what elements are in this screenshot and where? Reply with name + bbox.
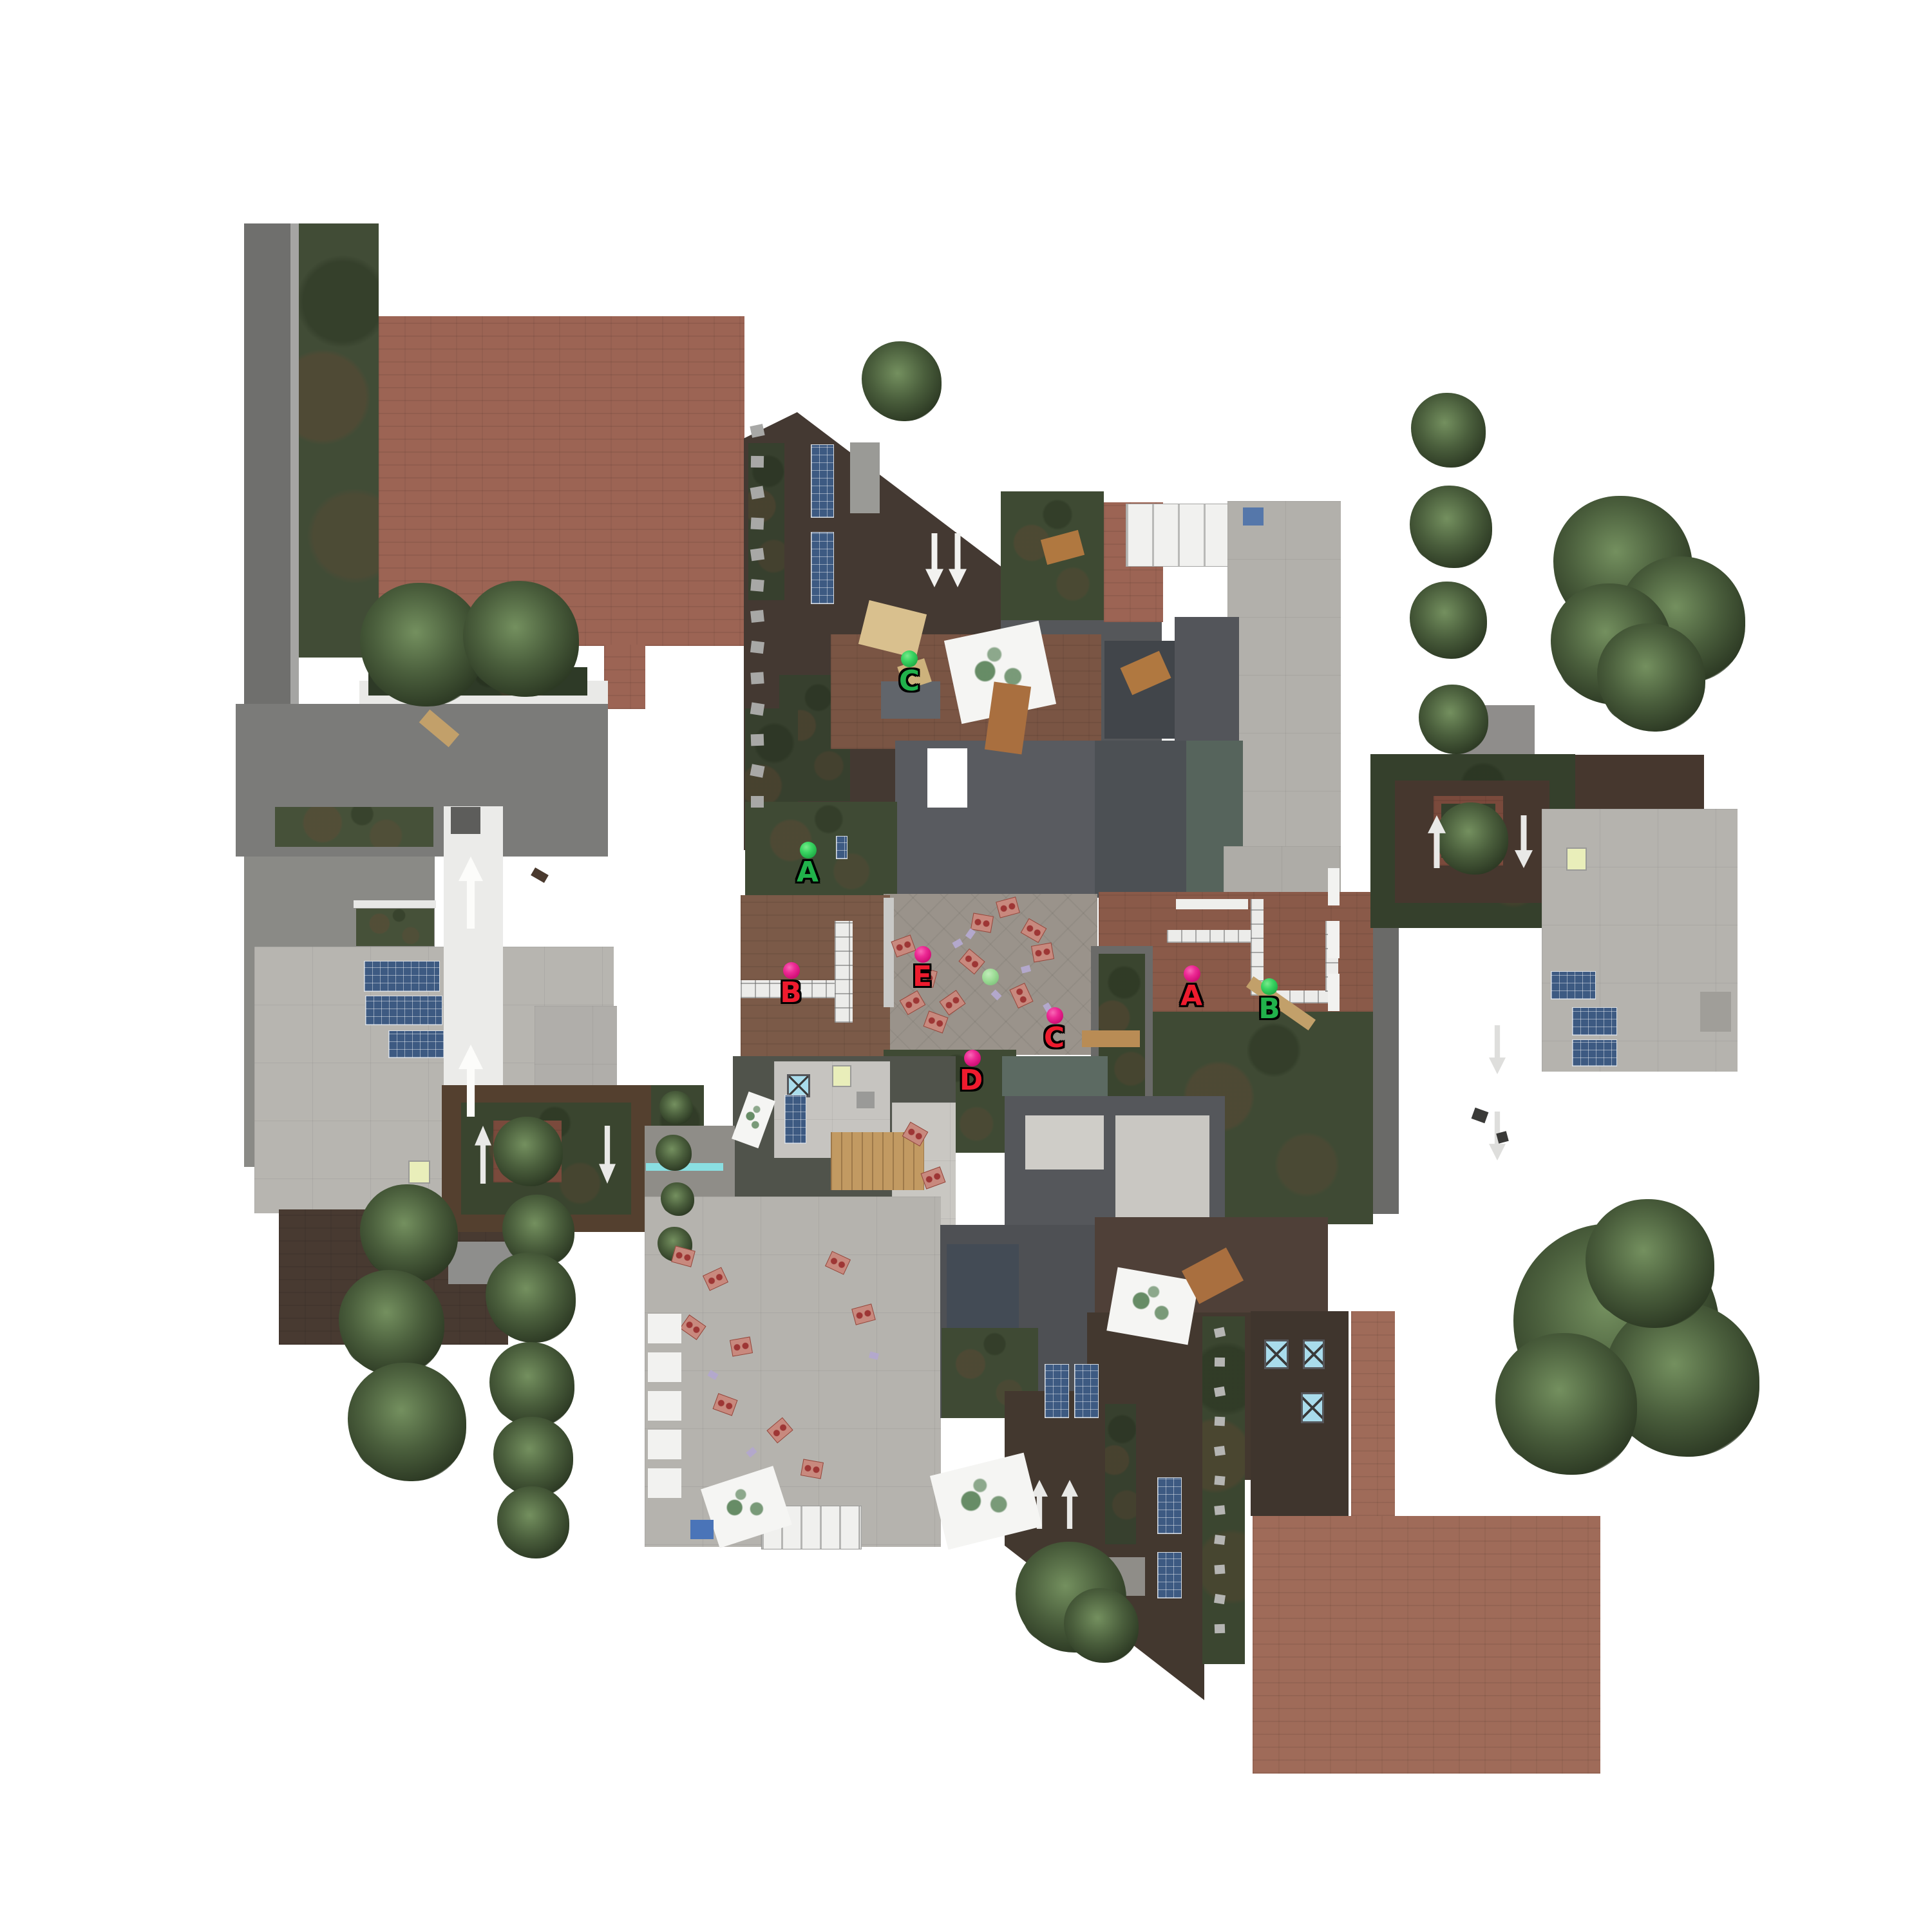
marker-label-green-C[interactable]: C [899, 667, 920, 696]
railing [884, 898, 894, 1007]
white-court [927, 748, 967, 808]
brick-plaza-br [1253, 1516, 1600, 1774]
road-cap [451, 807, 480, 834]
terracotta-arm [1351, 1311, 1395, 1516]
solar-array [811, 532, 834, 604]
grass-A [745, 802, 897, 898]
picnic-table [800, 1459, 824, 1479]
solar-array [784, 1095, 806, 1144]
solar-array [811, 444, 834, 518]
tree [1411, 393, 1486, 468]
window-slot [1328, 868, 1340, 905]
grey-box [857, 1092, 875, 1108]
stepping-stone [1215, 1358, 1225, 1367]
marker-label-red-B[interactable]: B [780, 979, 802, 1007]
bench-white [1176, 899, 1248, 909]
window-slot [648, 1468, 681, 1498]
skylight-lime [832, 1065, 851, 1087]
solar-array [1074, 1364, 1099, 1418]
grey-slab-roof [850, 442, 880, 513]
skylight-lime [1566, 848, 1587, 871]
arrow-down-icon [1489, 1025, 1506, 1074]
grey-slab-pad [1700, 992, 1731, 1032]
darkstrip-tr [1575, 755, 1704, 809]
stepping-stone [750, 610, 764, 623]
grass-inset-b [356, 909, 434, 946]
stepping-stone [750, 672, 764, 684]
tree [1419, 685, 1488, 754]
objective-dot-pale[interactable] [982, 969, 999, 985]
stepping-stone [1215, 1564, 1226, 1574]
stepping-stone [751, 517, 764, 529]
window-slot [1328, 921, 1340, 958]
concrete-bldg-tr [1227, 501, 1341, 846]
tile-path [1167, 930, 1252, 943]
stepping-stone [1214, 1594, 1226, 1604]
tree [493, 1417, 573, 1497]
picnic-table [1031, 942, 1054, 962]
window-slot [648, 1314, 681, 1343]
picnic-table [971, 913, 994, 933]
blue-window [1157, 1552, 1182, 1598]
tree [1597, 623, 1705, 732]
white-room [1025, 1115, 1104, 1170]
window-slot [648, 1391, 681, 1421]
marker-label-red-C[interactable]: C [1044, 1024, 1065, 1052]
stepping-stone [750, 548, 764, 562]
stepping-stone [1214, 1505, 1225, 1515]
terracotta-stem [604, 645, 645, 709]
skylight-cyan [1264, 1340, 1289, 1369]
tree [1410, 582, 1487, 659]
bench [1082, 1030, 1140, 1047]
green-strip-roof [1105, 1404, 1136, 1544]
blue-window [1157, 1477, 1182, 1534]
skylight-lime [408, 1160, 430, 1184]
stepping-stone [1214, 1535, 1226, 1545]
debris [531, 867, 549, 883]
tree [1495, 1333, 1637, 1475]
stepping-stone [750, 579, 764, 592]
grass-strip-left [299, 223, 379, 658]
tree [659, 1091, 693, 1124]
skylight-cyan [1303, 1340, 1325, 1369]
stepping-stone [1214, 1387, 1226, 1397]
marker-label-green-A[interactable]: A [797, 858, 819, 887]
rooms-mid-grey [895, 741, 1095, 895]
debris [1472, 1108, 1489, 1123]
stepping-stone [751, 734, 764, 746]
blue-panel [1243, 507, 1264, 526]
stepping-stone [751, 456, 764, 468]
tree [862, 341, 942, 421]
tree [661, 1182, 694, 1216]
solar-wall [836, 836, 848, 859]
tree [656, 1135, 692, 1171]
picnic-table [730, 1336, 753, 1356]
tree [339, 1270, 444, 1376]
tile-path [835, 921, 853, 1023]
solar-array [1551, 971, 1596, 999]
stepping-stone [751, 796, 764, 808]
stepping-stone [1214, 1475, 1225, 1485]
marker-label-red-A[interactable]: A [1180, 982, 1202, 1010]
skylight-cyan [787, 1074, 810, 1097]
tree [489, 1342, 574, 1427]
stepping-stone [750, 641, 764, 654]
solar-array [364, 961, 440, 992]
window-slot [648, 1352, 681, 1382]
solar-array [1572, 1007, 1617, 1036]
marker-label-red-D[interactable]: D [960, 1066, 983, 1095]
stepping-stone [1214, 1446, 1226, 1456]
stepping-stone [750, 486, 765, 499]
skylight-cyan [1301, 1392, 1324, 1423]
grass-inset-a [275, 807, 433, 847]
window-slot [1328, 974, 1340, 1011]
stepping-stone [1215, 1417, 1226, 1426]
white-curbline [354, 900, 436, 908]
stepping-stone [750, 703, 765, 716]
stepping-stone [1215, 1624, 1225, 1634]
solar-array [1572, 1039, 1617, 1066]
blue-rect [690, 1520, 714, 1539]
solar-array [1045, 1364, 1069, 1418]
white-room [1115, 1115, 1209, 1229]
game-map-canvas: CABBEACD [0, 0, 1932, 1932]
marker-label-red-E[interactable]: E [913, 963, 932, 991]
marker-label-green-B[interactable]: B [1258, 995, 1280, 1023]
tree [1410, 486, 1492, 568]
debris [1496, 1131, 1509, 1144]
glass-roof [1126, 504, 1229, 567]
wall-right [1373, 892, 1399, 1214]
solar-array [365, 996, 442, 1025]
tree [497, 1486, 569, 1558]
teal-roof [1002, 1056, 1108, 1096]
tree [348, 1363, 466, 1481]
greensteps-strip [1202, 1316, 1245, 1664]
stepping-stone [750, 764, 764, 777]
window-slot [648, 1430, 681, 1459]
